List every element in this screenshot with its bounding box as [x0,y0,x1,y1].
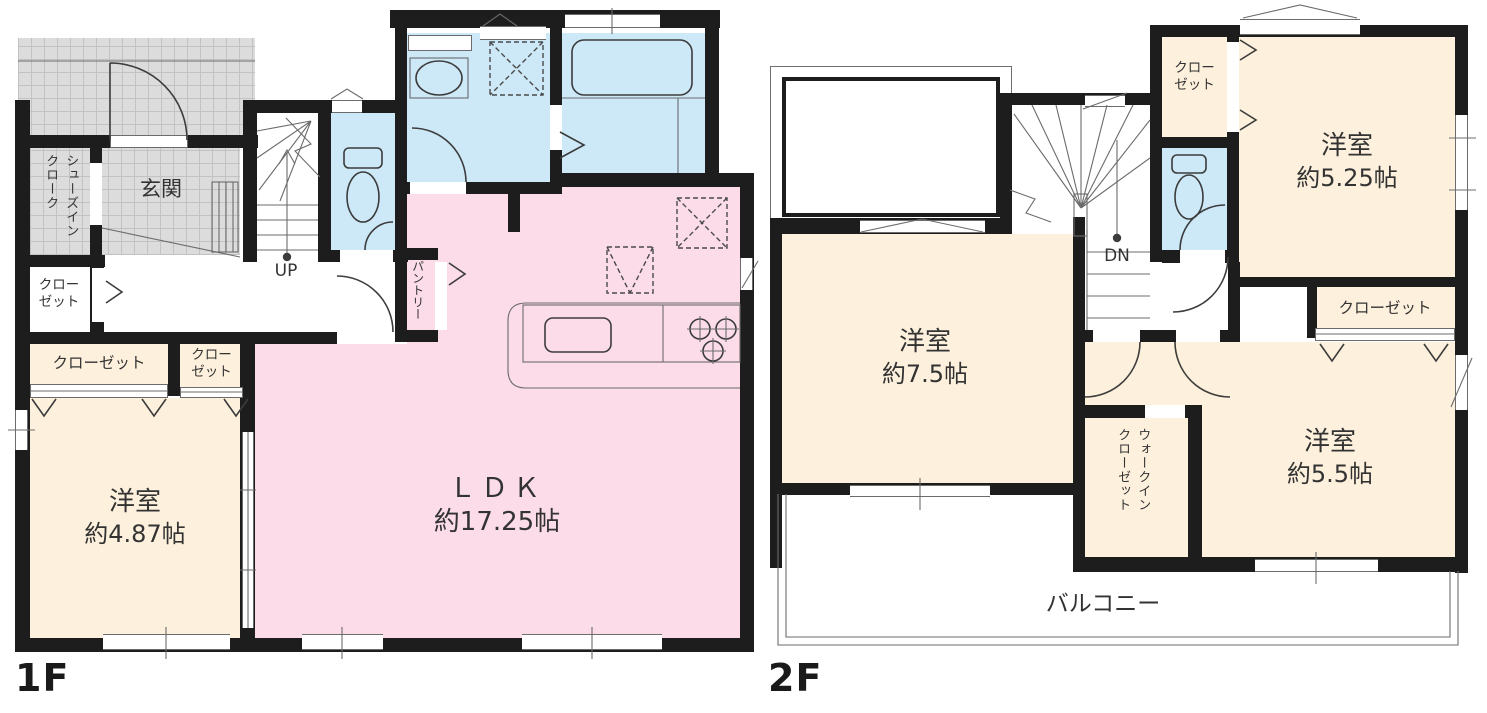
bedroom-1f-size: 約4.87帖 [30,519,240,549]
toilet-room-1f [330,113,395,250]
bedroom-se-size: 約5.5帖 [1230,459,1430,489]
bedroom-1f-name: 洋室 [30,486,240,519]
window [332,100,362,113]
bedroom-w-name: 洋室 [800,326,1050,359]
washroom-door-gap [410,182,466,194]
laundry-counter [408,35,472,51]
shoes-cloak-label: シューズイン クローク [40,154,80,256]
wall [15,135,110,148]
bedroom-door-arc [1173,257,1228,312]
wall [1162,137,1227,148]
window [302,634,383,650]
wall [1150,25,1162,262]
wall [1085,405,1145,418]
wall [1000,93,1162,105]
roof-void [782,77,1000,217]
wall [770,218,782,568]
window [565,14,660,28]
bath-door-gap [550,105,562,150]
wall [1220,330,1240,342]
closet-2f-line1: クロー [1163,60,1226,77]
closet-track [30,384,168,398]
ldk-door-arc [337,276,393,332]
bedroom-w-size: 約7.5帖 [800,359,1050,389]
closet-arrow [106,281,122,303]
pantry-door-gap [435,262,447,330]
toilet-room-2f [1162,148,1227,250]
window [740,258,753,290]
hall-closet-label: クロー ゼット [28,277,90,311]
opening [90,163,102,225]
window [1255,559,1378,572]
wall [550,173,720,187]
wall [1073,217,1085,570]
bedroom-ne-name: 洋室 [1239,130,1455,163]
wall [318,101,331,262]
closet-small-label: クロー ゼット [181,347,242,381]
closet-ne-label: クローゼット [1313,299,1457,318]
ldk-room [407,187,740,640]
window [860,220,985,233]
wall [1227,132,1239,262]
sliding-door [242,432,254,628]
wic-line1: ウォークイン [1132,428,1152,536]
window [522,634,662,650]
closet-opening [1227,42,1239,132]
ldk-size: 約17.25帖 [387,506,607,539]
balcony-label: バルコニー [1003,590,1203,619]
wall [1073,330,1095,342]
window [480,26,546,40]
bedroom-se-label: 洋室 約5.5帖 [1230,426,1430,489]
toilet-door-gap [340,250,393,262]
floor1-label: 1F [15,656,69,700]
closet-2f-line2: ゼット [1163,77,1226,94]
hall-closet-line1: クロー [28,277,90,294]
entrance-door-leaf [110,135,188,148]
ldk-name: ＬＤＫ [387,472,607,506]
ldk-label: ＬＤＫ 約17.25帖 [387,472,607,538]
bedroom-ne-size: 約5.25帖 [1239,163,1455,193]
wall [740,173,754,652]
wall [243,100,257,262]
porch-tile [18,38,255,138]
ldk-door-gap [337,332,395,344]
bathroom [562,33,705,182]
pantry-label: パントリー [408,260,427,338]
wall [508,187,520,232]
wall [240,332,337,344]
window [15,410,28,450]
wall [1239,277,1468,287]
shoes-cloak-line1: シューズイン [60,154,80,256]
floor2-label: 2F [768,656,822,700]
window [1085,95,1125,107]
closet-wide-label: クローゼット [30,354,168,373]
floor-plan-image: 玄関 シューズイン クローク クロー ゼット UP パントリー ＬＤＫ 約17.… [0,0,1487,713]
window [1455,355,1468,410]
bedroom-ne-label: 洋室 約5.25帖 [1239,130,1455,193]
wall [1000,105,1012,218]
wic-opening [1145,405,1185,418]
ldk-room-left [255,344,407,640]
walk-in-closet-label: ウォークイン クローゼット [1112,428,1152,536]
wall [1188,405,1202,570]
window [103,634,230,650]
wall [705,173,754,187]
wall [15,332,245,344]
closet-2f-label: クロー ゼット [1163,60,1226,94]
window [850,485,990,497]
bedroom-w-label: 洋室 約7.5帖 [800,326,1050,389]
washroom [405,33,550,188]
wall [168,332,180,396]
stairs-dn-label: DN [1088,246,1146,267]
closet-small-line1: クロー [181,347,242,364]
wic-line2: クローゼット [1112,428,1132,536]
wall [1140,330,1176,342]
closet-track [180,387,243,398]
bay-window [1240,19,1360,35]
bedroom-se-name: 洋室 [1230,426,1430,459]
window [1455,115,1468,210]
door-gap [1176,330,1220,342]
stairs-up-label: UP [255,261,317,282]
wall [550,150,562,173]
shoes-cloak-line2: クローク [40,154,60,256]
bedroom-1f-label: 洋室 約4.87帖 [30,486,240,549]
hall-closet-line2: ゼット [28,294,90,311]
toilet-door-gap [1180,250,1225,263]
genkan-label: 玄関 [106,176,216,202]
wall [15,100,30,652]
pantry-line: パントリー [408,260,427,338]
wall [550,23,562,105]
stairs-1f-icon [257,118,320,261]
wall [705,10,719,180]
wall [395,23,407,182]
closet-track [1315,328,1455,341]
closet-small-line2: ゼット [181,364,242,381]
door-gap [1093,330,1140,342]
wall [395,182,407,342]
closet-door-gap [92,268,104,322]
